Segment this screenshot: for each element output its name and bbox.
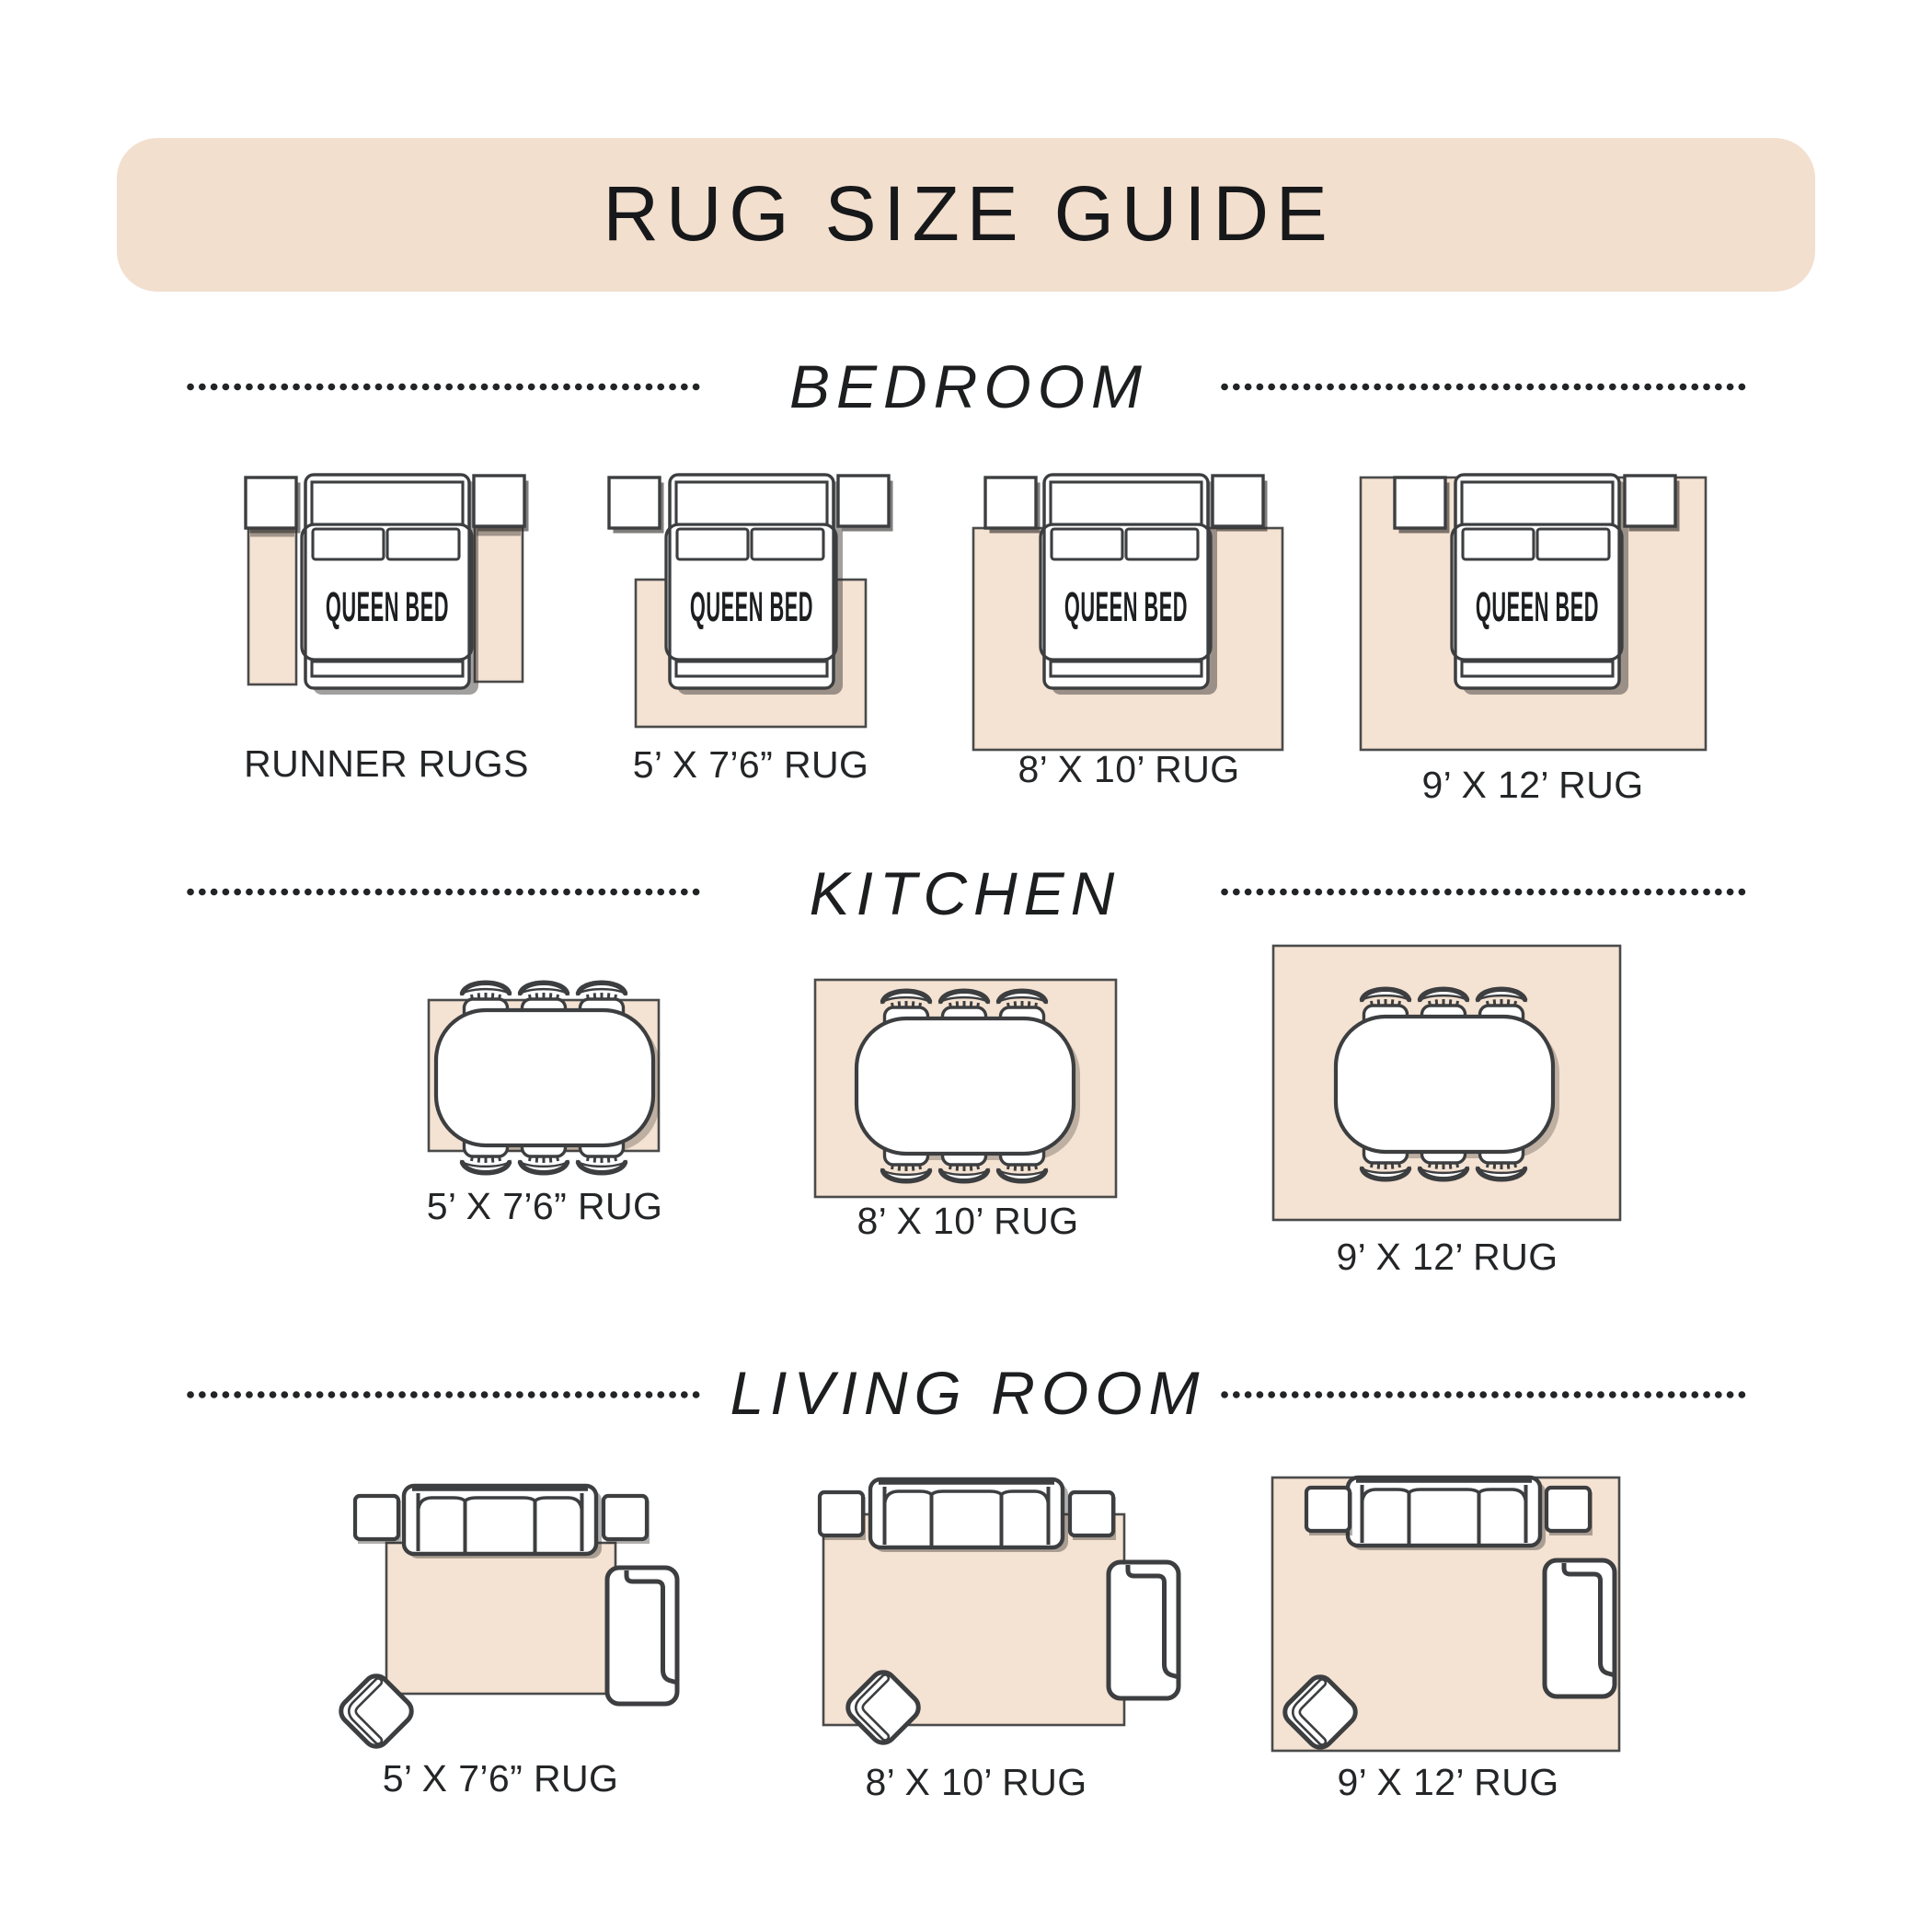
svg-text:8’ X 10’ RUG: 8’ X 10’ RUG — [865, 1761, 1087, 1803]
svg-text:9’ X 12’ RUG: 9’ X 12’ RUG — [1421, 764, 1643, 806]
svg-text:5’ X 7’6” RUG: 5’ X 7’6” RUG — [383, 1757, 619, 1800]
svg-text:RUG SIZE GUIDE: RUG SIZE GUIDE — [603, 170, 1334, 257]
svg-text:KITCHEN: KITCHEN — [810, 859, 1121, 927]
svg-text:9’ X 12’ RUG: 9’ X 12’ RUG — [1337, 1761, 1558, 1803]
svg-text:RUNNER RUGS: RUNNER RUGS — [244, 742, 529, 785]
svg-text:8’ X 10’ RUG: 8’ X 10’ RUG — [857, 1200, 1078, 1242]
svg-text:8’ X 10’ RUG: 8’ X 10’ RUG — [1018, 748, 1239, 790]
svg-text:BEDROOM: BEDROOM — [789, 352, 1148, 420]
svg-text:9’ X 12’ RUG: 9’ X 12’ RUG — [1336, 1236, 1558, 1278]
svg-text:5’ X 7’6” RUG: 5’ X 7’6” RUG — [427, 1185, 663, 1227]
svg-text:LIVING ROOM: LIVING ROOM — [730, 1359, 1205, 1427]
svg-text:5’ X 7’6” RUG: 5’ X 7’6” RUG — [633, 743, 869, 786]
